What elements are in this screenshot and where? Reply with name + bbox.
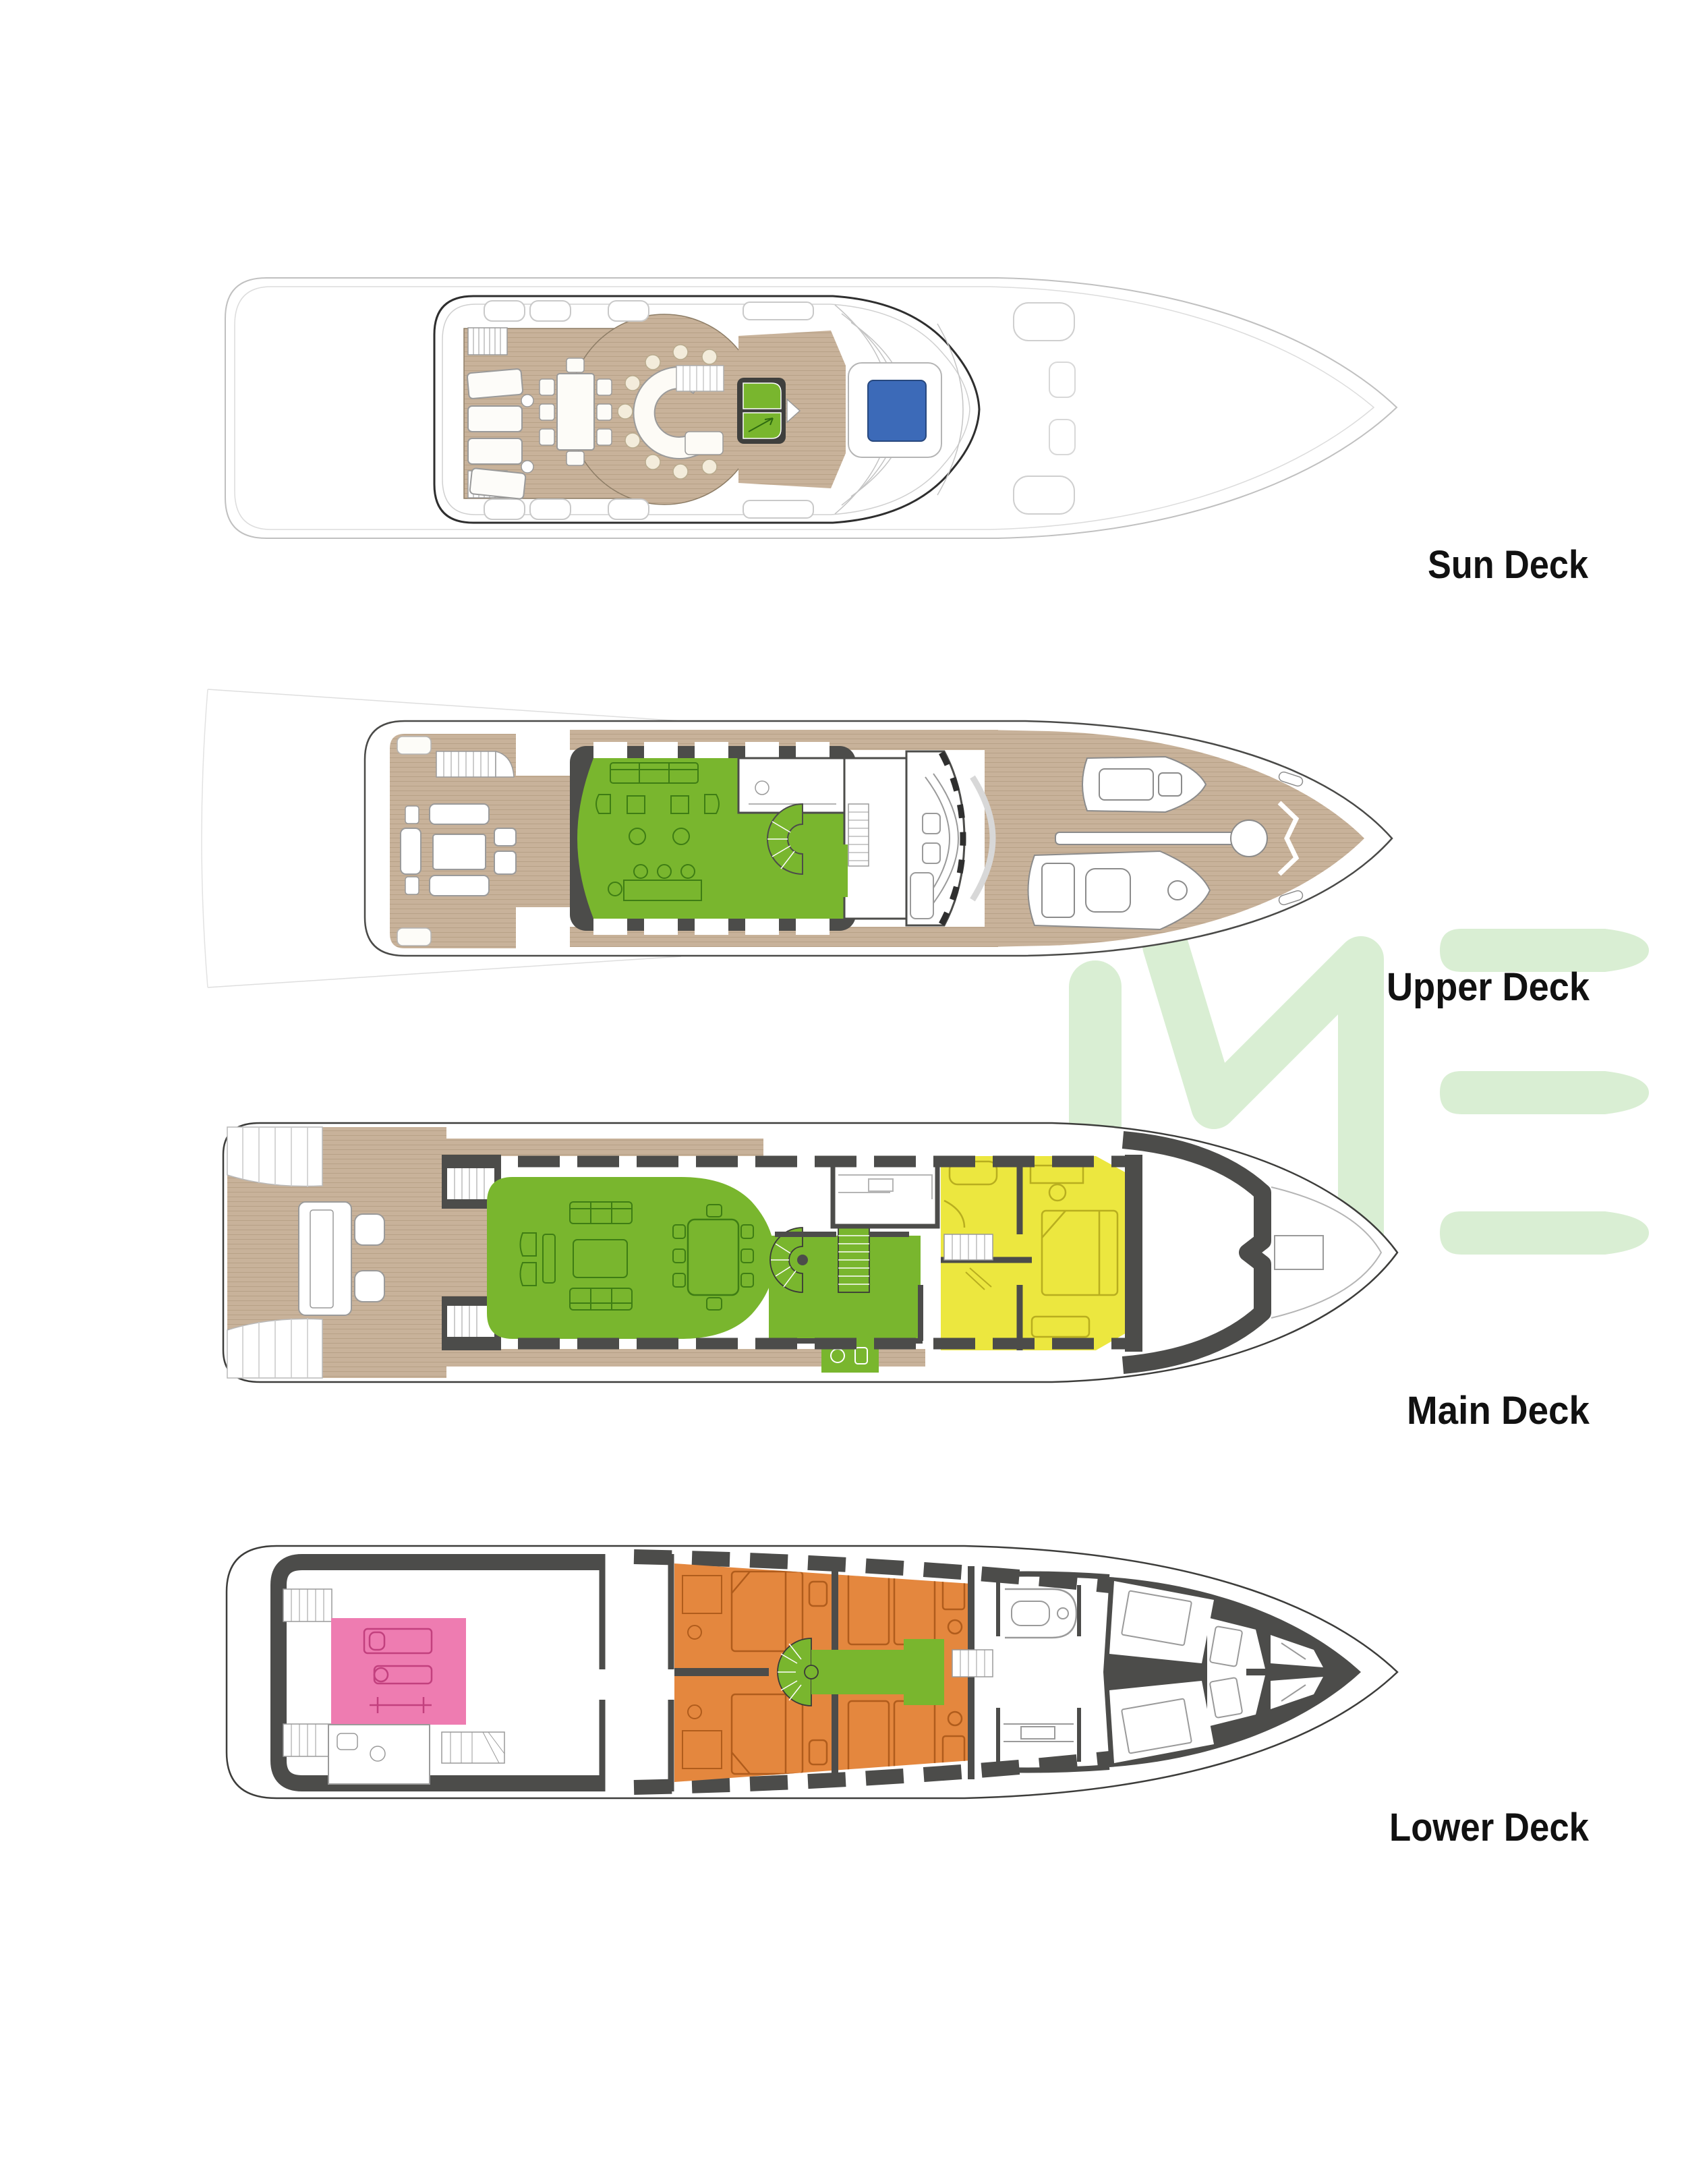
svg-text:Main Deck: Main Deck xyxy=(1407,1389,1590,1433)
svg-text:Lower Deck: Lower Deck xyxy=(1389,1806,1590,1849)
svg-text:Sun Deck: Sun Deck xyxy=(1428,543,1589,587)
svg-text:Upper Deck: Upper Deck xyxy=(1387,965,1590,1009)
